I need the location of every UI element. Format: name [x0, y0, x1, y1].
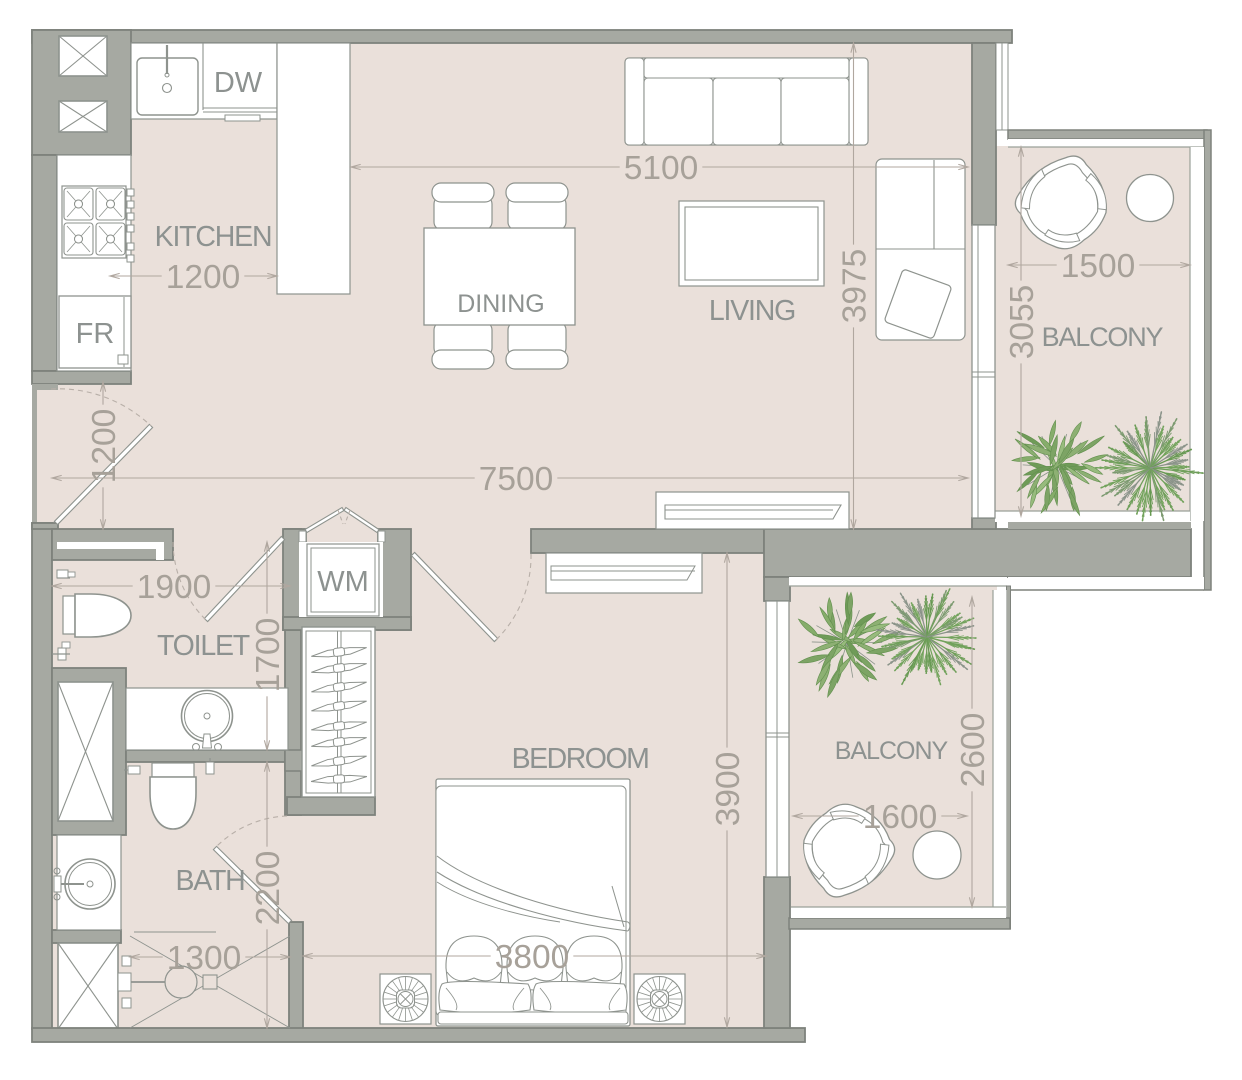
svg-text:3800: 3800 [495, 939, 570, 976]
svg-text:DW: DW [214, 67, 263, 99]
svg-text:5100: 5100 [624, 150, 699, 187]
svg-text:1500: 1500 [1061, 248, 1136, 285]
svg-text:1200: 1200 [86, 409, 123, 484]
svg-text:2200: 2200 [250, 851, 287, 926]
svg-text:DINING: DINING [457, 290, 545, 318]
svg-text:3975: 3975 [837, 249, 874, 324]
svg-text:3900: 3900 [710, 752, 747, 827]
svg-text:BATH: BATH [175, 865, 244, 897]
svg-text:WM: WM [317, 566, 369, 598]
svg-text:FR: FR [76, 318, 115, 350]
svg-text:1600: 1600 [863, 799, 938, 836]
svg-text:1700: 1700 [250, 618, 287, 693]
svg-text:BALCONY: BALCONY [835, 737, 949, 765]
svg-text:3055: 3055 [1004, 285, 1041, 360]
svg-text:1900: 1900 [137, 569, 212, 606]
svg-text:TOILET: TOILET [157, 630, 250, 662]
svg-text:BEDROOM: BEDROOM [512, 743, 649, 775]
svg-text:1200: 1200 [166, 259, 241, 296]
svg-text:2600: 2600 [955, 713, 992, 788]
svg-text:BALCONY: BALCONY [1042, 322, 1164, 352]
svg-text:1300: 1300 [167, 940, 242, 977]
svg-text:KITCHEN: KITCHEN [155, 221, 272, 253]
svg-text:7500: 7500 [479, 461, 554, 498]
svg-text:LIVING: LIVING [709, 295, 795, 327]
